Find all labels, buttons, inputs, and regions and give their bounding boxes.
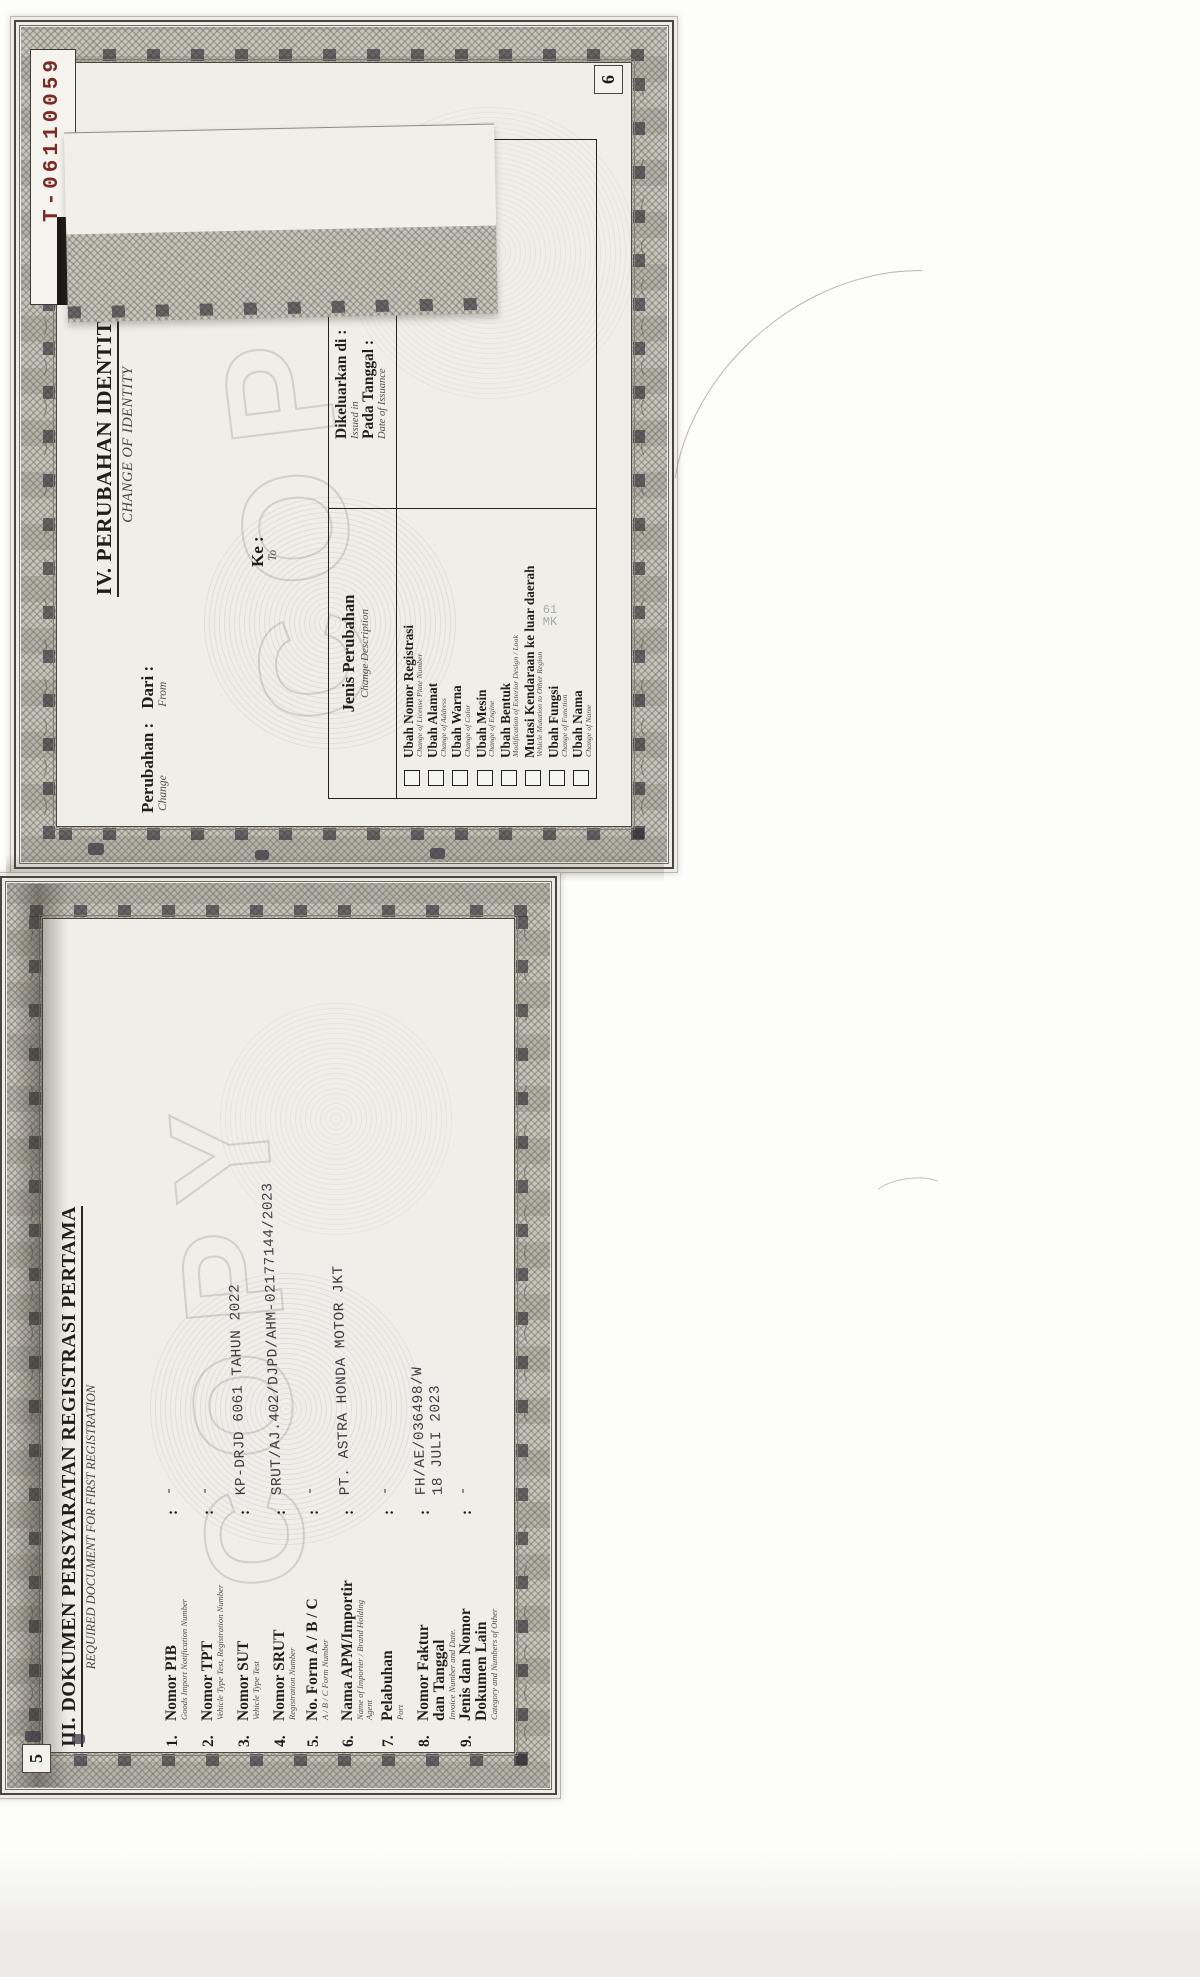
checkbox-ubah-mesin bbox=[477, 770, 493, 786]
page-5-title: III. DOKUMEN PERSYARATAN REGISTRASI PERT… bbox=[58, 1206, 81, 1747]
security-rosette bbox=[216, 999, 456, 1239]
page-number-6: 6 bbox=[594, 65, 623, 94]
checklist-row: Ubah Bentuk Modification of Exterior Des… bbox=[499, 512, 523, 788]
page-number-5: 5 bbox=[22, 1744, 51, 1773]
binding-crease bbox=[6, 854, 664, 882]
ke-label: Ke : bbox=[248, 536, 267, 567]
checkbox-ubah-fungsi bbox=[549, 770, 565, 786]
page-5: COPY 5 III. DOKUMEN PERSYARATAN REGISTRA… bbox=[0, 872, 561, 1799]
scanner-bed-shade bbox=[0, 1852, 1200, 1977]
issued-in-cell: Dikeluarkan di : Issued in Pada Tanggal … bbox=[334, 330, 388, 439]
checklist-row: Ubah Fungsi Change of Function bbox=[547, 512, 571, 788]
change-to-labels: Ke : To bbox=[248, 536, 279, 567]
change-description-sublabel: Change Description bbox=[359, 509, 371, 798]
security-rosette bbox=[146, 1269, 426, 1549]
change-checklist: Ubah Nomor Registrasi Change of License … bbox=[402, 512, 596, 788]
date-sublabel: Date of Issuance bbox=[377, 330, 388, 439]
checklist-row: Ubah Alamat Change of Address bbox=[426, 512, 450, 788]
staple-mark bbox=[72, 1734, 85, 1744]
scanner-curl-line bbox=[870, 1173, 948, 1215]
dari-label: Dari : From bbox=[138, 666, 169, 709]
to-sublabel: To bbox=[267, 536, 279, 561]
checkbox-ubah-bentuk bbox=[501, 770, 517, 786]
checklist-row: Mutasi Kendaraan ke luar daerah Vehicle … bbox=[523, 512, 547, 788]
checklist-row: Ubah Mesin Change of Engine bbox=[475, 512, 499, 788]
jenis-perubahan-header: Jenis Perubahan Change Description bbox=[339, 509, 371, 798]
from-sublabel: From bbox=[157, 666, 169, 707]
checklist-row: Ubah Warna Change of Color bbox=[450, 512, 474, 788]
date-label: Pada Tanggal : bbox=[361, 330, 377, 439]
checkbox-ubah-alamat bbox=[428, 770, 444, 786]
checklist-row: Ubah Nama Change of Name bbox=[571, 512, 595, 788]
overlapping-page-edge bbox=[64, 124, 498, 323]
checklist-row: Ubah Nomor Registrasi Change of License … bbox=[402, 512, 426, 788]
change-from-labels: Perubahan : Change Dari : From bbox=[138, 666, 169, 813]
overlapping-page-paper bbox=[64, 124, 496, 236]
staple-mark bbox=[430, 848, 445, 859]
perubahan-label: Perubahan : Change bbox=[138, 723, 169, 813]
checkbox-ubah-warna bbox=[452, 770, 468, 786]
checkbox-ubah-nama bbox=[573, 770, 589, 786]
staple-mark bbox=[88, 843, 104, 855]
checkbox-ubah-nomor-registrasi bbox=[404, 770, 420, 786]
border-scallop bbox=[633, 62, 644, 827]
border-teeth bbox=[30, 905, 527, 917]
scanner-curl-line bbox=[595, 190, 1153, 737]
staple-mark bbox=[255, 850, 269, 860]
change-sublabel: Change bbox=[157, 723, 169, 811]
ink-bleed-artifact: 61 MK bbox=[543, 604, 557, 628]
page-5-subtitle: REQUIRED DOCUMENT FOR FIRST REGISTRATION bbox=[84, 1307, 99, 1747]
page-5-wrapper: COPY 5 III. DOKUMEN PERSYARATAN REGISTRA… bbox=[0, 872, 561, 1799]
border-teeth bbox=[30, 1754, 527, 1766]
border-scallop bbox=[516, 918, 527, 1753]
checkbox-mutasi-kendaraan bbox=[525, 770, 541, 786]
scanned-document: COPY T-06110059 No IV. PERUBAHAN IDENTIT… bbox=[0, 0, 1200, 1977]
issued-label: Dikeluarkan di : bbox=[334, 330, 350, 439]
staple-mark bbox=[25, 1731, 41, 1742]
